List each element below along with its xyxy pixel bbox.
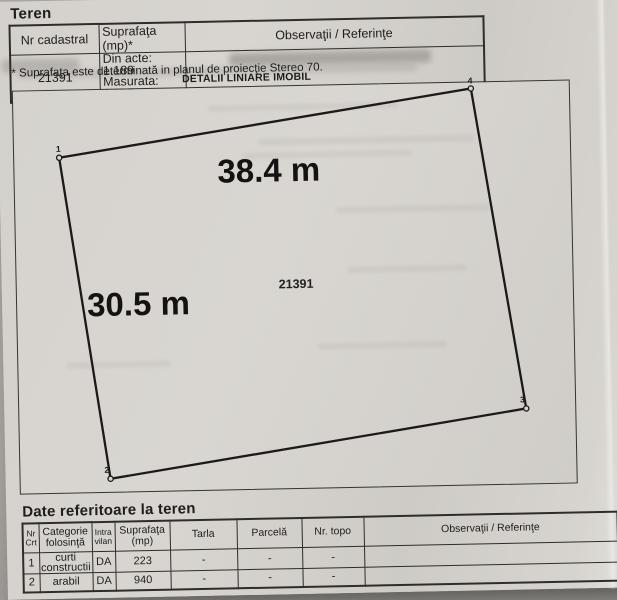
cell-intravilan: DA <box>92 572 115 591</box>
header-nr-topo: Nr. topo <box>301 517 364 547</box>
scanned-paper: Teren Nr cadastral Suprafaţa (mp)* Obser… <box>0 0 617 600</box>
cell-nr: 1 <box>23 552 39 573</box>
parcel-diagram: 1 4 3 2 38.4 m 30.5 m 21391 <box>12 80 578 495</box>
cell-nr-topo: - <box>302 567 364 587</box>
date-teren-table: Nr Crt Categorie folosinţă Intra vilan S… <box>21 511 617 594</box>
vertex-point-4 <box>468 86 473 91</box>
date-teren-section-title: Date referitoare la teren <box>22 500 196 520</box>
cell-parcela: - <box>237 568 302 588</box>
header-intravilan: Intra vilan <box>91 522 115 551</box>
corner-label-1: 1 <box>56 144 61 154</box>
top-length-label: 38.4 m <box>217 151 320 190</box>
header-tarla: Tarla <box>169 519 237 549</box>
cell-categorie: curti constructii <box>39 551 92 573</box>
cell-categorie: arabil <box>39 572 92 592</box>
corner-label-4: 4 <box>468 75 473 85</box>
vertex-point-2 <box>108 476 113 481</box>
corner-label-3: 3 <box>520 394 525 404</box>
parcel-polygon-svg: 1 4 3 2 38.4 m 30.5 m 21391 <box>13 80 579 495</box>
cell-nr: 2 <box>23 573 39 592</box>
paper-fold-highlight <box>596 0 615 588</box>
cell-suprafata: 223 <box>115 550 170 572</box>
cell-tarla: - <box>170 569 237 589</box>
parcel-number-label: 21391 <box>279 277 314 292</box>
cell-observatii <box>364 562 617 586</box>
corner-label-2: 2 <box>104 465 109 475</box>
cell-suprafata: 940 <box>115 571 170 591</box>
vertex-point-1 <box>56 155 61 160</box>
cell-nr-topo: - <box>302 546 364 568</box>
document-content: Teren Nr cadastral Suprafaţa (mp)* Obser… <box>0 0 617 600</box>
teren-header-nr-cadastral: Nr cadastral <box>9 24 99 55</box>
header-nr-crt: Nr Crt <box>22 523 39 552</box>
cell-parcela: - <box>237 547 302 569</box>
teren-header-suprafata: Suprafaţa (mp)* <box>98 22 185 53</box>
header-suprafata-mp: Suprafaţa (mp) <box>114 521 170 551</box>
header-parcela: Parcelă <box>236 518 302 548</box>
cell-intravilan: DA <box>92 551 115 572</box>
teren-section-title: Teren <box>10 5 52 23</box>
vertex-point-3 <box>524 406 529 411</box>
left-length-label: 30.5 m <box>87 284 190 323</box>
cell-tarla: - <box>170 548 237 570</box>
header-categorie-folosinta: Categorie folosinţă <box>38 522 92 552</box>
